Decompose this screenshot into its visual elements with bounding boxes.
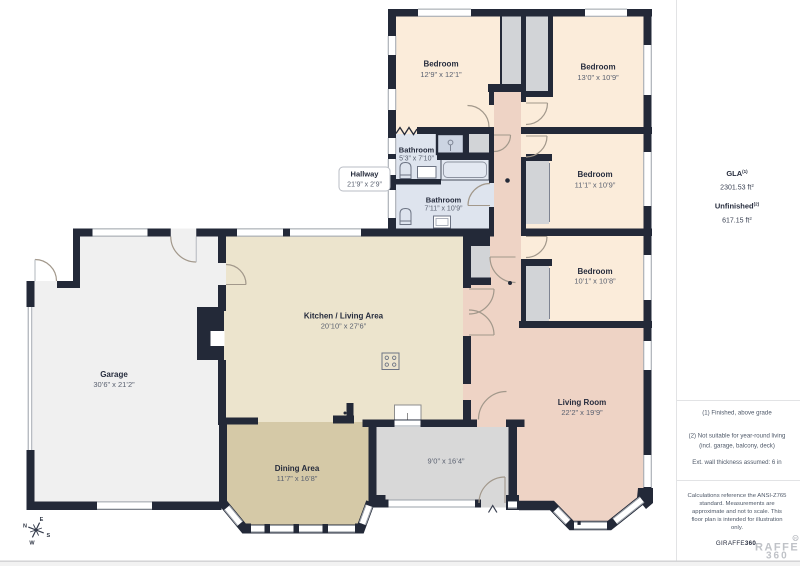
svg-text:Hallway: Hallway: [351, 170, 380, 179]
svg-text:(incl. garage, balcony, deck): (incl. garage, balcony, deck): [699, 443, 775, 450]
svg-text:N: N: [23, 524, 27, 530]
svg-text:Dining Area: Dining Area: [275, 464, 320, 473]
svg-text:approximate and not to scale.: approximate and not to scale. This: [692, 509, 782, 515]
svg-text:Bedroom: Bedroom: [423, 60, 458, 69]
svg-text:Kitchen / Living Area: Kitchen / Living Area: [304, 312, 384, 321]
svg-text:(2) Not suitable for year‑roun: (2) Not suitable for year‑round living: [689, 433, 786, 440]
svg-text:21’9” x 2’9”: 21’9” x 2’9”: [347, 182, 382, 189]
svg-text:Ext. wall thickness assumed: 6: Ext. wall thickness assumed: 6 in: [692, 459, 781, 466]
svg-text:360: 360: [766, 551, 789, 562]
svg-text:5’3” x 7’10”: 5’3” x 7’10”: [399, 156, 434, 163]
svg-text:Bathroom: Bathroom: [399, 146, 435, 155]
svg-text:22’2” x 19’9”: 22’2” x 19’9”: [561, 408, 603, 417]
svg-text:30’6” x 21’2”: 30’6” x 21’2”: [93, 380, 135, 389]
svg-text:20’10” x 27’6”: 20’10” x 27’6”: [321, 322, 367, 331]
svg-text:(1) Finished, above grade: (1) Finished, above grade: [702, 410, 772, 417]
svg-text:standard. Measurements are: standard. Measurements are: [699, 501, 775, 507]
svg-text:12’9” x 12’1”: 12’9” x 12’1”: [420, 70, 462, 79]
svg-text:floor plan is intended for ill: floor plan is intended for illustration: [691, 517, 782, 523]
svg-text:617.15 ft2: 617.15 ft2: [722, 216, 752, 225]
svg-text:only.: only.: [731, 525, 743, 531]
svg-text:Bedroom: Bedroom: [577, 170, 612, 179]
svg-text:E: E: [40, 517, 44, 523]
svg-text:9’0” x 16’4”: 9’0” x 16’4”: [427, 457, 465, 466]
svg-text:2301.53 ft2: 2301.53 ft2: [720, 183, 754, 192]
svg-text:13’0” x 10’9”: 13’0” x 10’9”: [577, 73, 619, 82]
svg-text:Unfinished(2): Unfinished(2): [715, 202, 760, 211]
svg-text:11’7” x 16’8”: 11’7” x 16’8”: [277, 474, 318, 483]
svg-text:Calculations reference the ANS: Calculations reference the ANSI-Z765: [688, 493, 788, 499]
svg-text:GIRAFFE360: GIRAFFE360: [716, 540, 756, 547]
svg-text:R: R: [794, 536, 797, 541]
svg-text:Garage: Garage: [100, 370, 128, 379]
svg-text:Living Room: Living Room: [558, 398, 606, 407]
svg-text:Bedroom: Bedroom: [577, 267, 612, 276]
svg-text:S: S: [46, 533, 50, 539]
svg-text:Bedroom: Bedroom: [580, 63, 615, 72]
svg-text:W: W: [29, 541, 35, 547]
svg-text:7’11” x 10’9”: 7’11” x 10’9”: [424, 206, 463, 213]
svg-text:Bathroom: Bathroom: [426, 196, 462, 205]
svg-text:11’1” x 10’9”: 11’1” x 10’9”: [575, 181, 616, 190]
svg-text:10’1” x 10’8”: 10’1” x 10’8”: [574, 277, 616, 286]
